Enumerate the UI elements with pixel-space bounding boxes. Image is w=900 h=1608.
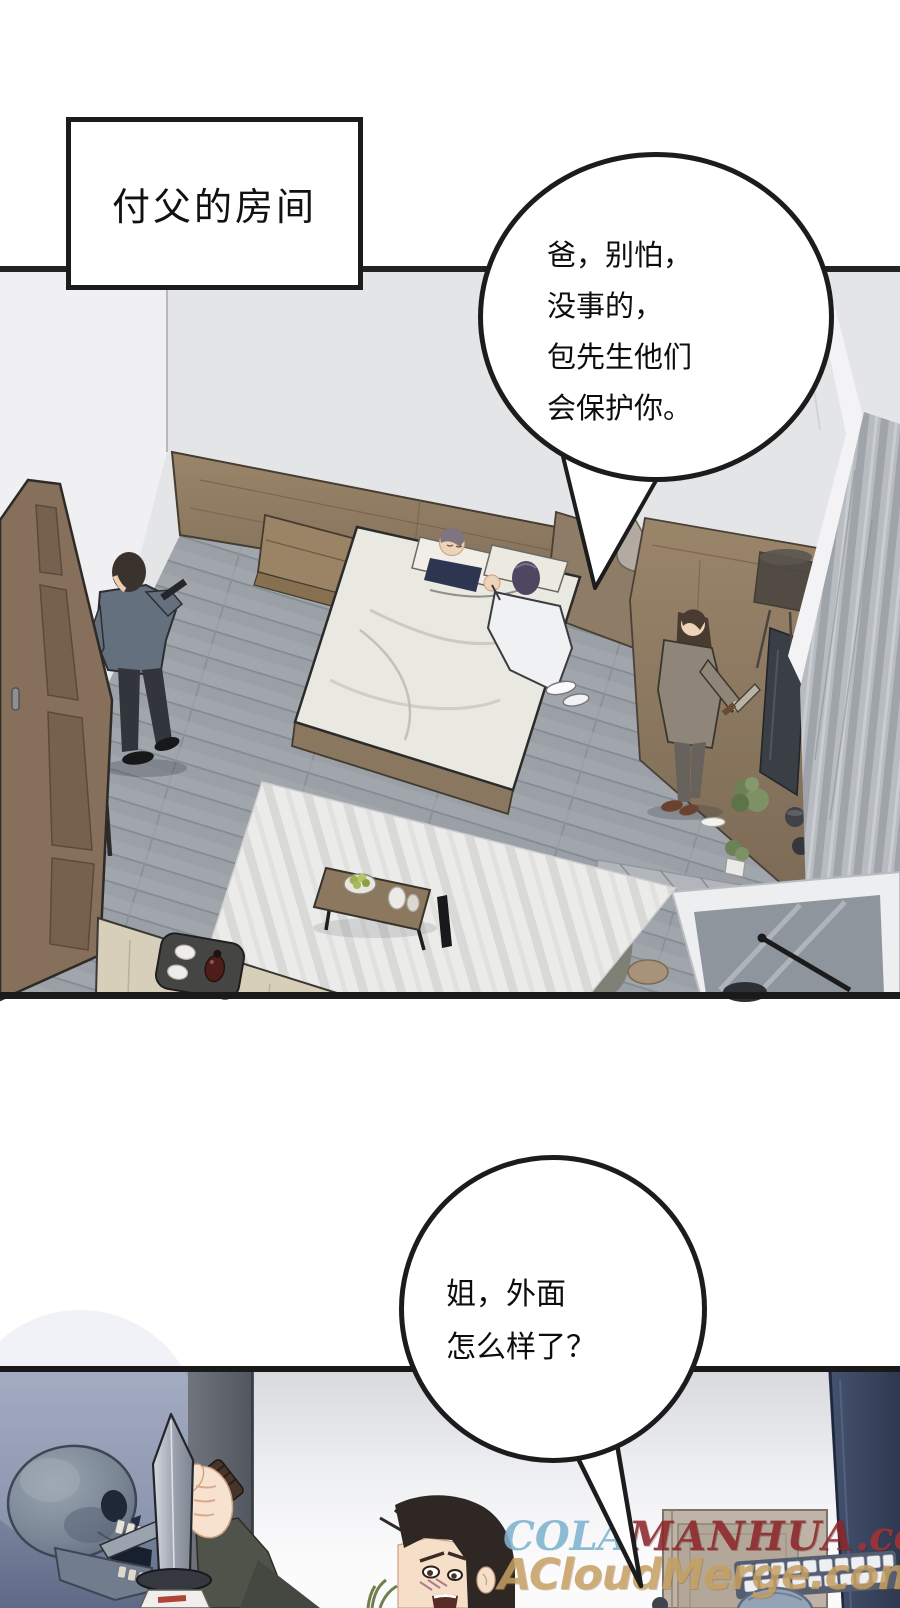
watermark-line2: ACloudMerge.com — [498, 1550, 900, 1600]
speech-bubble-1-text: 爸，别怕， 没事的， 包先生他们 会保护你。 — [547, 231, 692, 435]
bubble1-line: 爸，别怕， — [547, 231, 692, 282]
comic-page: 付父的房间 爸，别怕， 没事的， 包先生他们 会保护你。 COLAMANHUA.… — [0, 0, 900, 1608]
caption-text: 付父的房间 — [112, 176, 317, 231]
vase-2 — [407, 895, 419, 912]
bubble2-line: 怎么样了？ — [446, 1321, 596, 1374]
speech-bubble-2: 姐，外面 怎么样了？ — [399, 1155, 707, 1463]
caption-box: 付父的房间 — [66, 117, 363, 290]
stool — [628, 960, 668, 984]
bubble2-line: 姐，外面 — [446, 1268, 596, 1321]
door-handle — [12, 688, 19, 710]
vase — [389, 887, 406, 909]
bubble1-line: 没事的， — [547, 282, 692, 333]
leaning-mirror — [672, 872, 900, 1002]
tan-coat — [658, 640, 722, 748]
held-hands — [484, 575, 500, 591]
speech-bubble-2-text: 姐，外面 怎么样了？ — [446, 1268, 596, 1374]
panel-border — [0, 992, 900, 999]
bubble1-line: 包先生他们 — [547, 333, 692, 384]
bodyguard-hair — [112, 552, 146, 592]
bubble1-line: 会保护你。 — [547, 384, 692, 435]
speech-bubble-1: 爸，别怕， 没事的， 包先生他们 会保护你。 — [478, 152, 834, 482]
cross-guard — [137, 1569, 211, 1591]
